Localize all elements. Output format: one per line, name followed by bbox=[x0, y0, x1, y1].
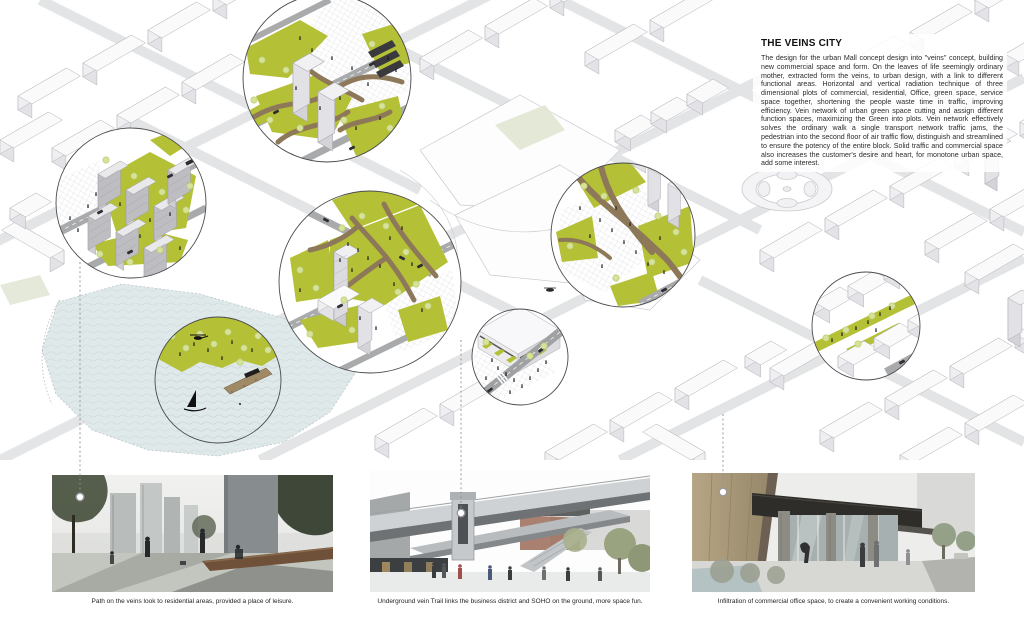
presentation-board: THE VEINS CITY The design for the urban … bbox=[0, 0, 1024, 622]
callout-dot-marker bbox=[76, 493, 84, 501]
callout-green-path bbox=[812, 253, 950, 380]
callout-dot-marker bbox=[457, 509, 465, 517]
render-office-space bbox=[692, 473, 975, 592]
roundabout bbox=[742, 167, 832, 211]
callout-residential bbox=[56, 128, 206, 287]
caption-residential: Path on the veins look to residential ar… bbox=[52, 598, 333, 605]
callout-dot-marker bbox=[719, 488, 727, 496]
render-residential-path bbox=[52, 475, 333, 592]
page-title: THE VEINS CITY bbox=[761, 38, 1003, 49]
text-panel: THE VEINS CITY The design for the urban … bbox=[753, 34, 1007, 172]
callout-veins-plaza bbox=[243, 0, 412, 162]
render-underground-trail bbox=[370, 470, 650, 592]
callout-soho-street bbox=[472, 306, 568, 405]
caption-office: Infiltration of commercial office space,… bbox=[692, 598, 975, 605]
caption-underground: Underground vein Trail links the busines… bbox=[370, 598, 650, 605]
rooftop-helipad-mark bbox=[544, 288, 556, 292]
description-paragraph: The design for the urban Mall concept de… bbox=[761, 54, 1003, 168]
